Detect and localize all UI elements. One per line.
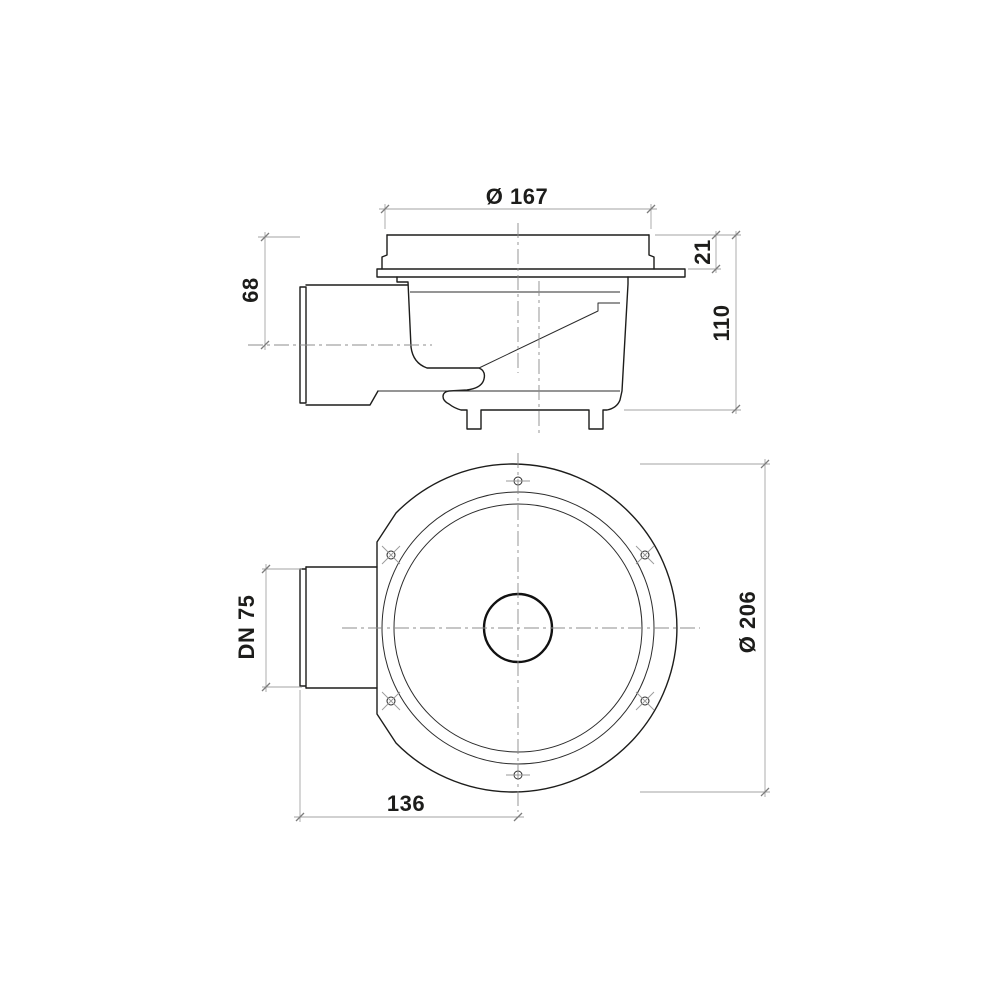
drawing-sheet: Ø 167 21 110 68 — [0, 0, 1000, 1000]
dim-outlet-nominal: DN 75 — [234, 564, 302, 692]
dim-grate-height: 21 — [655, 231, 741, 273]
technical-drawing: Ø 167 21 110 68 — [0, 0, 1000, 1000]
body-outline — [397, 277, 628, 429]
dim-outlet-axis-height: 68 — [238, 232, 300, 350]
outlet-pipe-bottom — [306, 391, 378, 405]
dim-label-outlet-projection: 136 — [387, 791, 425, 816]
dim-label-grate-diameter: Ø 167 — [486, 184, 548, 209]
trap-slope-line — [479, 303, 620, 368]
grate-ring-right-edge — [649, 235, 654, 269]
dim-label-outlet-nominal: DN 75 — [234, 595, 259, 660]
side-view — [248, 223, 685, 433]
side-view-dimensions: Ø 167 21 110 68 — [238, 184, 741, 414]
plan-view-dimensions: DN 75 Ø 206 136 — [234, 459, 770, 822]
dim-label-flange-diameter: Ø 206 — [735, 591, 760, 653]
dim-label-outlet-axis-height: 68 — [238, 277, 263, 302]
dim-label-grate-height: 21 — [690, 239, 715, 264]
plan-pipe-end-cap — [300, 567, 306, 688]
dim-grate-diameter: Ø 167 — [379, 184, 657, 229]
grate-ring-left-edge — [382, 235, 387, 269]
dim-body-height: 110 — [624, 231, 741, 414]
flange-plate — [377, 269, 685, 277]
dim-label-body-height: 110 — [709, 305, 734, 342]
plan-view — [300, 453, 700, 812]
extension-line — [262, 569, 302, 687]
